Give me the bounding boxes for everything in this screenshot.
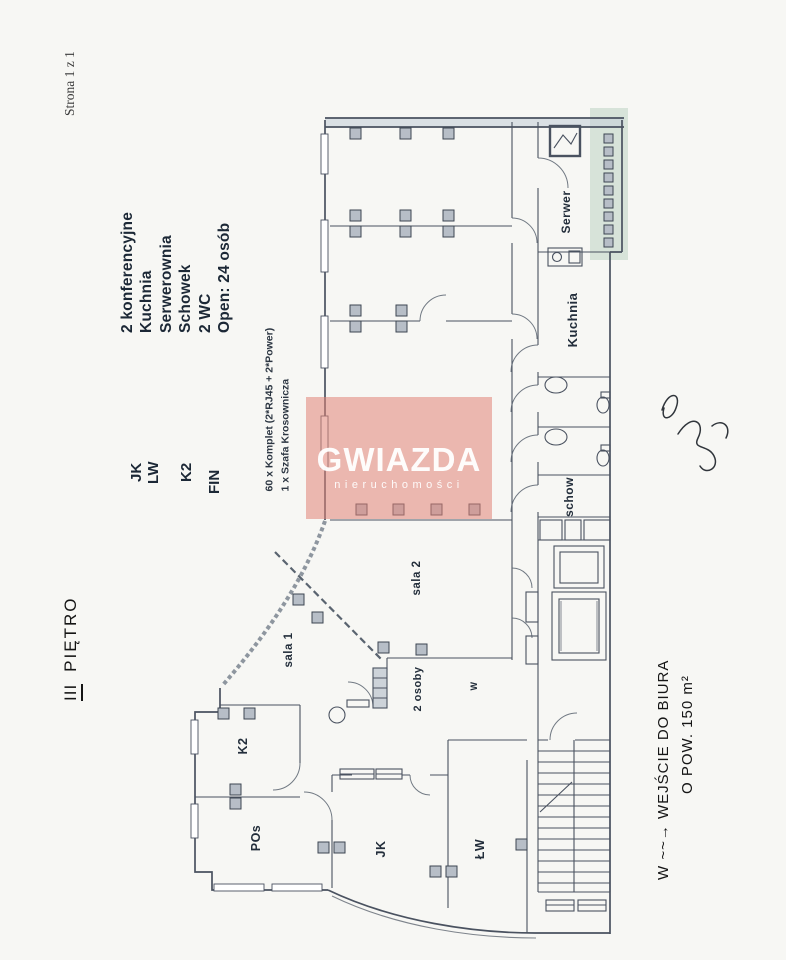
kitchen-sink-icon <box>548 248 582 266</box>
room-label-kuchnia: Kuchnia <box>565 292 580 347</box>
entrance-note-line2: O POW. 150 m² <box>676 608 700 880</box>
exterior-walls <box>195 118 624 938</box>
pen-scribbles <box>648 382 748 492</box>
entrance-note: W ~~→ WEJŚCIE DO BIURA O POW. 150 m² <box>652 608 698 880</box>
interior-walls <box>195 122 622 933</box>
watermark: GWIAZDA nieruchomości <box>306 397 492 519</box>
room-label-sala2: sala 2 <box>411 561 423 596</box>
staircase <box>538 740 610 892</box>
watermark-brand: GWIAZDA <box>306 443 492 476</box>
elevator <box>552 546 606 660</box>
page-indicator: Strona 1 z 1 <box>62 12 78 116</box>
room-label-jk: JK <box>374 841 388 858</box>
legend-code-lw: LW <box>145 454 161 484</box>
curved-glass-wall <box>222 521 325 686</box>
legend-room-item: Serwerownia <box>157 173 176 333</box>
floor-title: IIIPIĘTRO <box>61 581 85 701</box>
room-labels: Serwer Kuchnia schow sala 2 sala 1 2 oso… <box>236 190 580 859</box>
room-label-schow: schow <box>562 477 576 517</box>
legend-code-jk: JK <box>128 452 144 482</box>
wc-fixtures <box>545 377 610 466</box>
watermark-subtitle: nieruchomości <box>306 479 492 491</box>
floor-plan: Serwer Kuchnia schow sala 2 sala 1 2 oso… <box>180 100 640 940</box>
scanned-page: Strona 1 z 1 2 konferencyjne Kuchnia Ser… <box>0 0 786 960</box>
legend-room-item: Kuchnia <box>137 173 156 333</box>
room-label-two-people: 2 osoby <box>412 666 424 711</box>
room-label-sala1: sala 1 <box>283 632 295 667</box>
room-label-lw: ŁW <box>473 839 487 859</box>
floor-numeral: III <box>61 684 83 701</box>
entrance-note-line1: W ~~→ WEJŚCIE DO BIURA <box>652 608 676 880</box>
room-label-k2: K2 <box>236 738 250 755</box>
desk-two-people <box>347 668 387 708</box>
room-label-serwer: Serwer <box>559 190 573 233</box>
floor-word: PIĘTRO <box>61 597 80 672</box>
column <box>329 707 345 723</box>
legend-room-item: 2 konferencyjne <box>118 173 137 333</box>
room-label-w: W <box>469 682 479 691</box>
ac-unit-icon <box>550 126 580 156</box>
room-label-pos: POs <box>249 825 263 852</box>
